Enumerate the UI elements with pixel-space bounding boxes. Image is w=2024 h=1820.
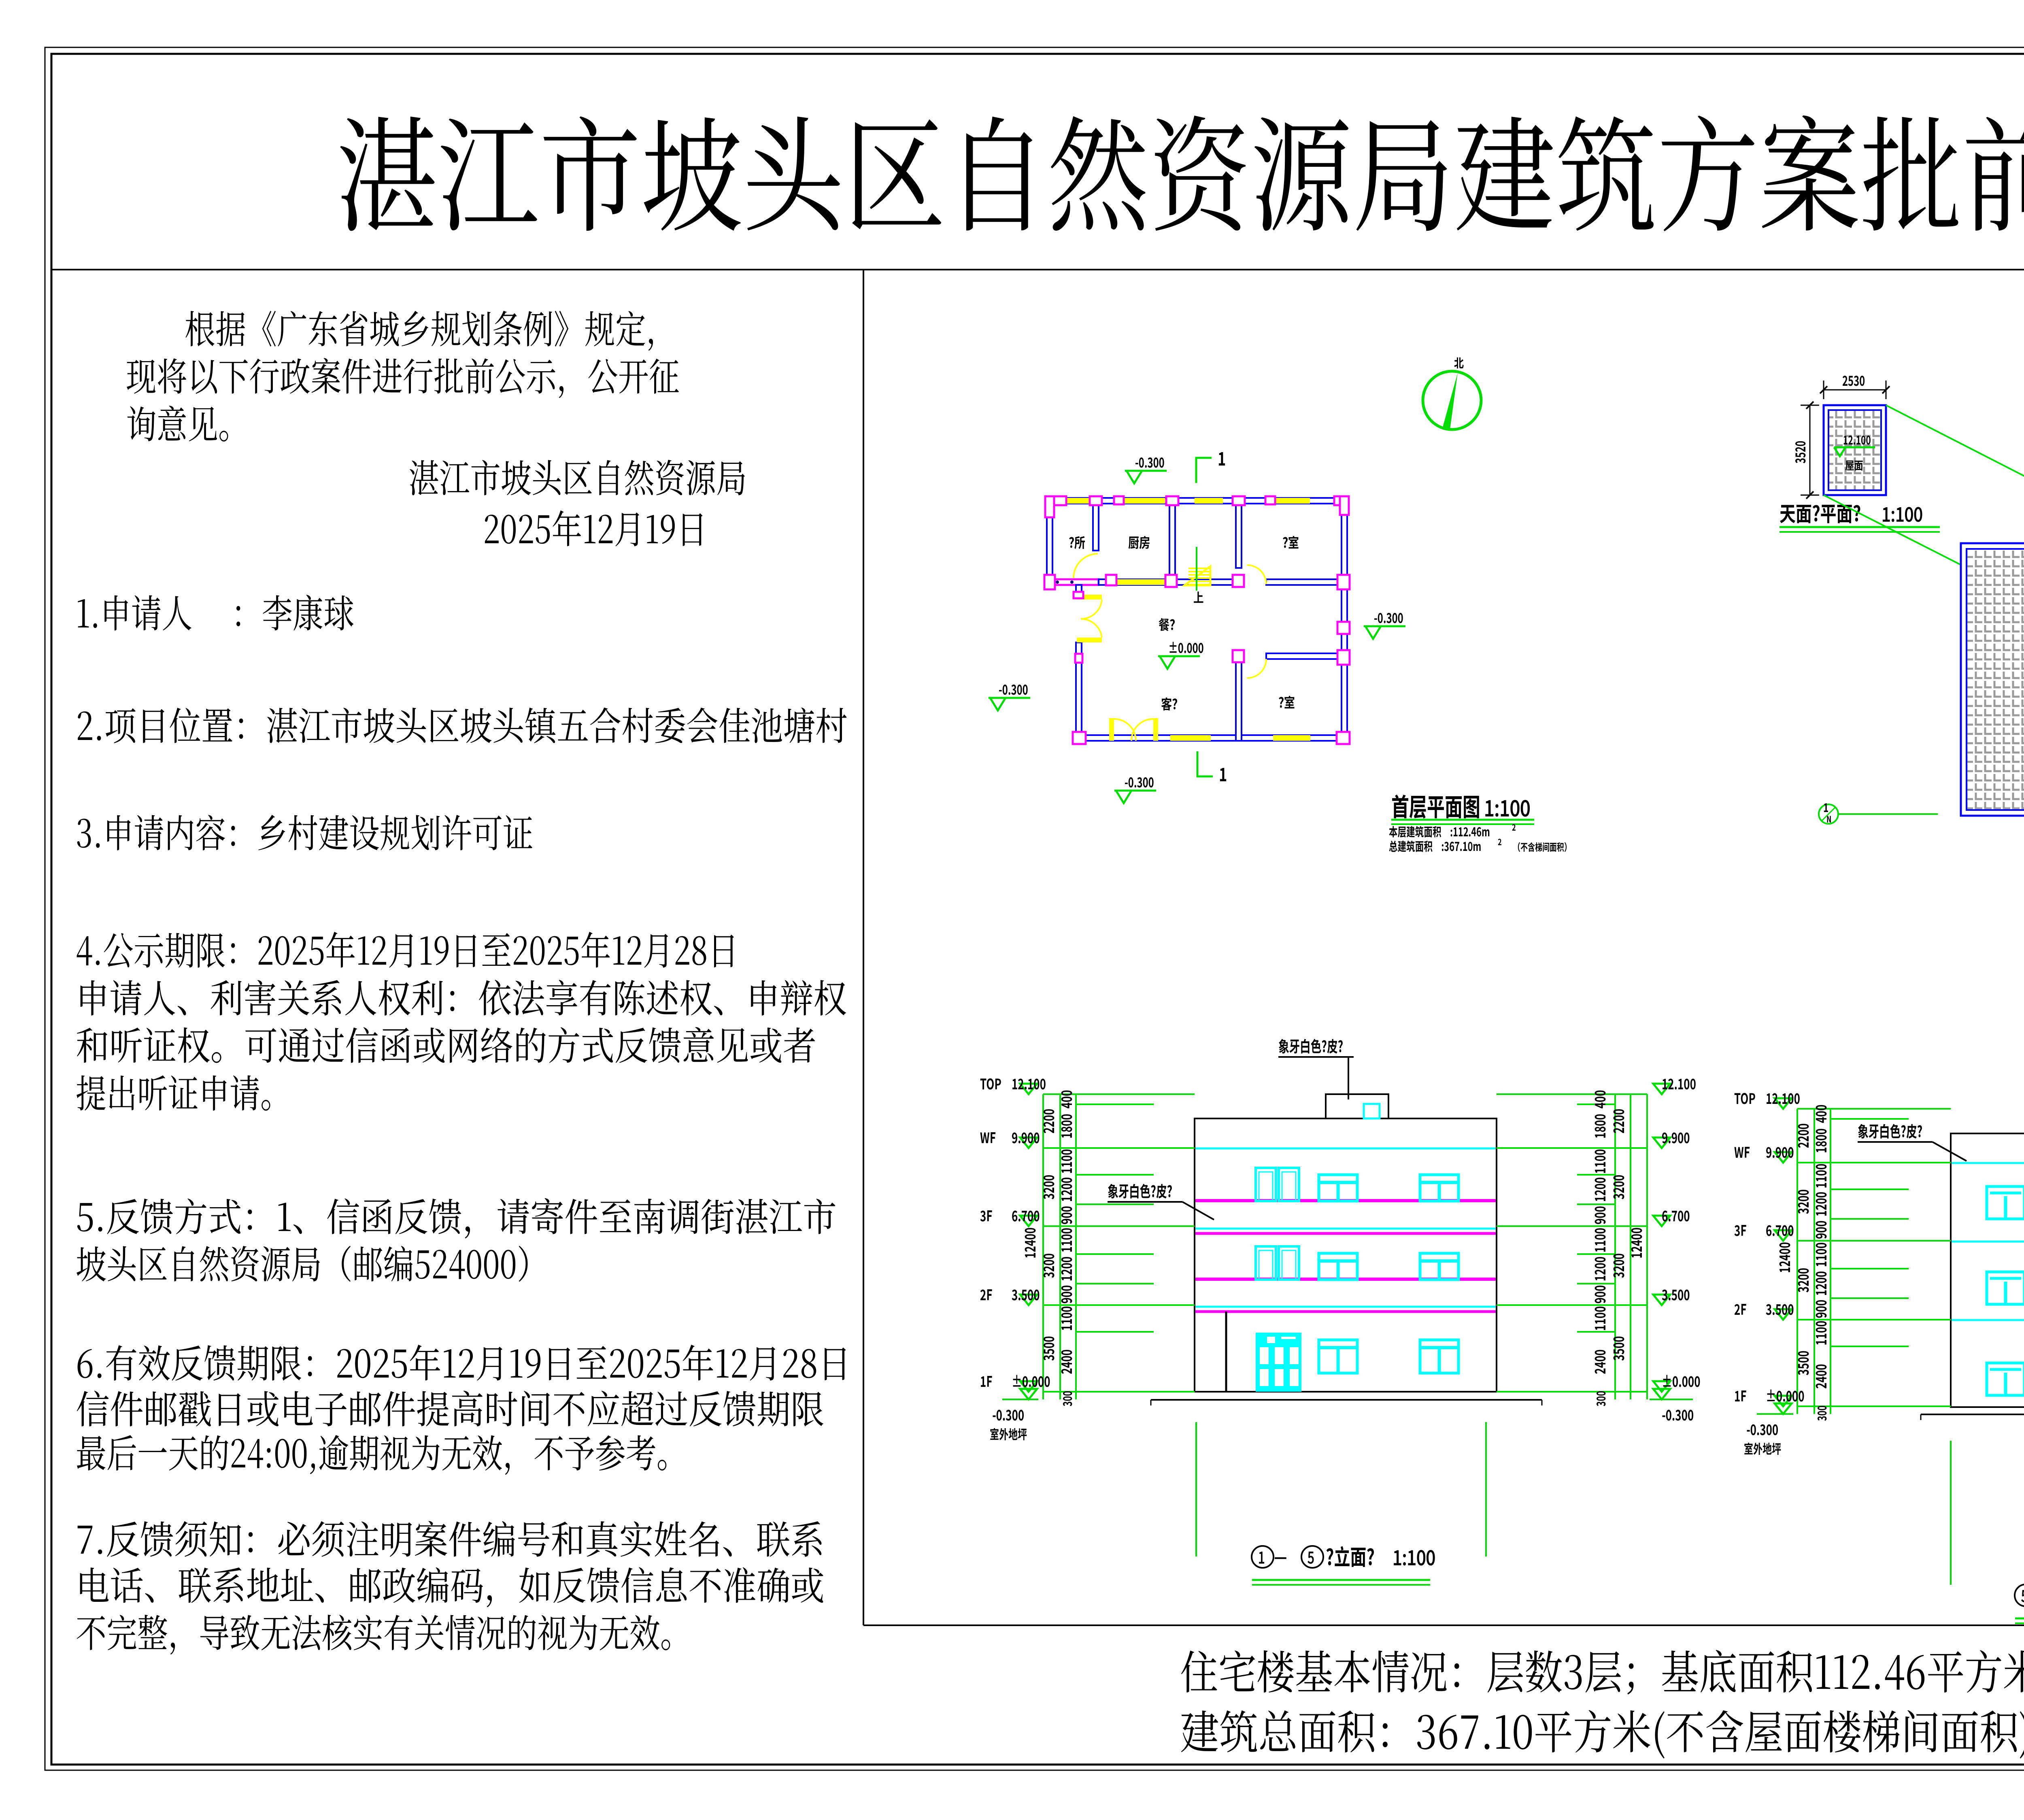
- svg-text:12.100: 12.100: [1662, 1073, 1696, 1094]
- svg-text:WF: WF: [1734, 1142, 1750, 1163]
- svg-text:1200: 1200: [1810, 1192, 1831, 1216]
- svg-text:2530: 2530: [1842, 370, 1865, 390]
- svg-text:现将以下行政案件进行批前公示，公开征: 现将以下行政案件进行批前公示，公开征: [126, 347, 680, 402]
- svg-text:北: 北: [1454, 353, 1464, 371]
- svg-text:6.700: 6.700: [1766, 1220, 1794, 1241]
- svg-text:室外地坪: 室外地坪: [990, 1425, 1027, 1443]
- svg-text:900: 900: [1056, 1285, 1077, 1304]
- svg-text:400: 400: [1810, 1105, 1831, 1123]
- svg-text:2.项目位置：湛江市坡头区坡头镇五合村委会佳池塘村: 2.项目位置：湛江市坡头区坡头镇五合村委会佳池塘村: [76, 696, 848, 751]
- svg-text:首层平面图: 首层平面图: [1391, 788, 1480, 824]
- svg-text:1F: 1F: [1734, 1385, 1746, 1406]
- svg-text:2: 2: [1498, 835, 1502, 848]
- svg-text:TOP: TOP: [1734, 1088, 1756, 1109]
- svg-text:2: 2: [1512, 820, 1516, 833]
- svg-text:2200: 2200: [1792, 1123, 1814, 1148]
- svg-text:2200: 2200: [1608, 1109, 1629, 1133]
- svg-text:3200: 3200: [1038, 1253, 1059, 1278]
- svg-text:900: 900: [1810, 1220, 1831, 1239]
- svg-text:3.500: 3.500: [1662, 1284, 1690, 1305]
- svg-text:900: 900: [1589, 1285, 1610, 1304]
- svg-text:-0.300: -0.300: [1662, 1404, 1694, 1425]
- svg-text:?室: ?室: [1282, 532, 1299, 552]
- svg-text:2400: 2400: [1589, 1349, 1610, 1374]
- svg-text:厨房: 厨房: [1128, 532, 1150, 552]
- svg-text:湛江市坡头区自然资源局建筑方案批前公示: 湛江市坡头区自然资源局建筑方案批前公示: [336, 78, 2024, 257]
- svg-text:1.申请人 ：李康球: 1.申请人 ：李康球: [76, 583, 354, 639]
- svg-text:?立面?: ?立面?: [1326, 1539, 1375, 1571]
- svg-text:2F: 2F: [1734, 1299, 1746, 1320]
- svg-text:300: 300: [1813, 1405, 1831, 1421]
- svg-text:9.900: 9.900: [1766, 1142, 1794, 1163]
- svg-text:最后一天的24:00,逾期视为无效，不予参考。: 最后一天的24:00,逾期视为无效，不予参考。: [76, 1423, 687, 1479]
- svg-text:提出听证申请。: 提出听证申请。: [76, 1063, 291, 1119]
- svg-text:3520: 3520: [1790, 441, 1810, 464]
- svg-text:2400: 2400: [1810, 1364, 1831, 1388]
- svg-text:3.500: 3.500: [1012, 1284, 1040, 1305]
- svg-text:-0.300: -0.300: [999, 679, 1028, 699]
- svg-text:坡头区自然资源局（邮编524000）: 坡头区自然资源局（邮编524000）: [76, 1234, 548, 1290]
- svg-text:3F: 3F: [1734, 1220, 1746, 1241]
- svg-text:1:100: 1:100: [1882, 499, 1923, 527]
- svg-text:12400: 12400: [1626, 1227, 1647, 1258]
- svg-text:TOP: TOP: [980, 1073, 1001, 1094]
- svg-text:1100: 1100: [1589, 1149, 1610, 1174]
- svg-text:天面?平面?: 天面?平面?: [1780, 498, 1861, 528]
- svg-text:室外地坪: 室外地坪: [1744, 1439, 1781, 1458]
- svg-text:—: —: [1274, 1542, 1287, 1569]
- svg-text:?室: ?室: [1278, 691, 1295, 712]
- svg-text:1100: 1100: [1056, 1149, 1077, 1174]
- svg-text:9.900: 9.900: [1012, 1127, 1040, 1148]
- svg-text:1100: 1100: [1810, 1242, 1831, 1267]
- svg-text:-0.300: -0.300: [1746, 1419, 1778, 1440]
- svg-text:4.公示期限：2025年12月19日至2025年12月28日: 4.公示期限：2025年12月19日至2025年12月28日: [76, 921, 739, 976]
- svg-text:1100: 1100: [1589, 1306, 1610, 1331]
- svg-text:3200: 3200: [1038, 1175, 1059, 1199]
- svg-text:400: 400: [1589, 1090, 1610, 1109]
- svg-text:餐?: 餐?: [1159, 614, 1175, 634]
- svg-text:住宅楼基本情况：层数3层；基底面积112.46平方米；: 住宅楼基本情况：层数3层；基底面积112.46平方米；: [1180, 1637, 2024, 1702]
- svg-text:1200: 1200: [1589, 1257, 1610, 1281]
- svg-text:12.100: 12.100: [1766, 1088, 1800, 1109]
- svg-text:询意见。: 询意见。: [126, 394, 249, 450]
- svg-text:2400: 2400: [1056, 1349, 1077, 1374]
- svg-text:1100: 1100: [1810, 1320, 1831, 1345]
- svg-text:湛江市坡头区自然资源局: 湛江市坡头区自然资源局: [408, 448, 747, 504]
- svg-text:屋面: 屋面: [1845, 457, 1863, 473]
- svg-text:-0.300: -0.300: [1135, 452, 1165, 472]
- svg-text:1200: 1200: [1056, 1257, 1077, 1281]
- svg-text:1100: 1100: [1810, 1163, 1831, 1188]
- svg-text:-0.300: -0.300: [992, 1404, 1024, 1425]
- svg-text:象牙白色?皮?: 象牙白色?皮?: [1278, 1035, 1343, 1057]
- svg-text:1800: 1800: [1810, 1128, 1831, 1153]
- svg-text:和听证权。可通过信函或网络的方式反馈意见或者: 和听证权。可通过信函或网络的方式反馈意见或者: [76, 1016, 816, 1071]
- svg-text:1: 1: [1219, 760, 1227, 787]
- svg-text:3.申请内容：乡村建设规划许可证: 3.申请内容：乡村建设规划许可证: [76, 803, 534, 859]
- svg-text:6.700: 6.700: [1662, 1205, 1690, 1226]
- svg-text:3F: 3F: [980, 1205, 992, 1226]
- svg-text:象牙白色?皮?: 象牙白色?皮?: [1858, 1120, 1922, 1142]
- svg-text:±0.000: ±0.000: [1168, 638, 1204, 657]
- svg-text:1: 1: [1258, 1545, 1265, 1569]
- svg-text:1100: 1100: [1056, 1228, 1077, 1252]
- svg-text:900: 900: [1810, 1300, 1831, 1318]
- svg-text:12.100: 12.100: [1012, 1073, 1046, 1094]
- svg-text:客?: 客?: [1161, 693, 1178, 713]
- svg-text:3200: 3200: [1792, 1189, 1814, 1214]
- svg-text:1800: 1800: [1589, 1114, 1610, 1138]
- svg-text:1200: 1200: [1810, 1271, 1831, 1296]
- svg-text:总建筑面积 :367.10m: 总建筑面积 :367.10m: [1389, 837, 1481, 855]
- svg-text:900: 900: [1589, 1206, 1610, 1225]
- svg-text:6.700: 6.700: [1012, 1205, 1040, 1226]
- svg-text:300: 300: [1058, 1391, 1076, 1406]
- svg-text:不完整，导致无法核实有关情况的视为无效。: 不完整，导致无法核实有关情况的视为无效。: [76, 1603, 691, 1658]
- svg-text:2025年12月19日: 2025年12月19日: [483, 499, 707, 555]
- svg-text:2F: 2F: [980, 1284, 992, 1305]
- svg-text:9.900: 9.900: [1662, 1127, 1690, 1148]
- svg-text:5: 5: [1308, 1545, 1314, 1569]
- svg-text:400: 400: [1056, 1090, 1077, 1109]
- svg-text:1F: 1F: [980, 1371, 992, 1392]
- svg-text:12.100: 12.100: [1843, 431, 1871, 448]
- svg-text:3500: 3500: [1608, 1336, 1629, 1361]
- svg-text:900: 900: [1056, 1206, 1077, 1225]
- svg-text:1:100: 1:100: [1484, 791, 1531, 823]
- svg-text:上: 上: [1193, 588, 1204, 606]
- svg-text:300: 300: [1592, 1391, 1609, 1406]
- svg-text:1200: 1200: [1056, 1177, 1077, 1202]
- svg-text:1100: 1100: [1589, 1228, 1610, 1252]
- svg-text:1:100: 1:100: [1393, 1542, 1435, 1571]
- svg-text:3500: 3500: [1038, 1336, 1059, 1361]
- svg-text:建筑总面积：367.10平方米(不含屋面楼梯间面积)。: 建筑总面积：367.10平方米(不含屋面楼梯间面积)。: [1180, 1697, 2024, 1762]
- svg-text:3200: 3200: [1608, 1175, 1629, 1199]
- svg-text:12400: 12400: [1774, 1242, 1795, 1273]
- svg-text:（不含梯间面积）: （不含梯间面积）: [1513, 840, 1571, 854]
- svg-text:2200: 2200: [1038, 1109, 1059, 1133]
- svg-text:3200: 3200: [1792, 1268, 1814, 1293]
- svg-text:3.500: 3.500: [1766, 1299, 1794, 1320]
- svg-text:5: 5: [2021, 1584, 2024, 1607]
- svg-text:N: N: [1826, 812, 1831, 825]
- svg-text:1: 1: [1218, 444, 1226, 471]
- svg-text:3500: 3500: [1792, 1350, 1814, 1375]
- svg-text:-0.300: -0.300: [1125, 772, 1154, 792]
- svg-text:1800: 1800: [1056, 1114, 1077, 1138]
- svg-text:?所: ?所: [1069, 532, 1085, 552]
- svg-text:象牙白色?皮?: 象牙白色?皮?: [1108, 1180, 1172, 1201]
- svg-text:-0.300: -0.300: [1374, 608, 1403, 627]
- svg-text:12400: 12400: [1019, 1227, 1040, 1258]
- svg-text:1100: 1100: [1056, 1306, 1077, 1331]
- svg-text:1200: 1200: [1589, 1177, 1610, 1202]
- svg-text:WF: WF: [980, 1127, 996, 1148]
